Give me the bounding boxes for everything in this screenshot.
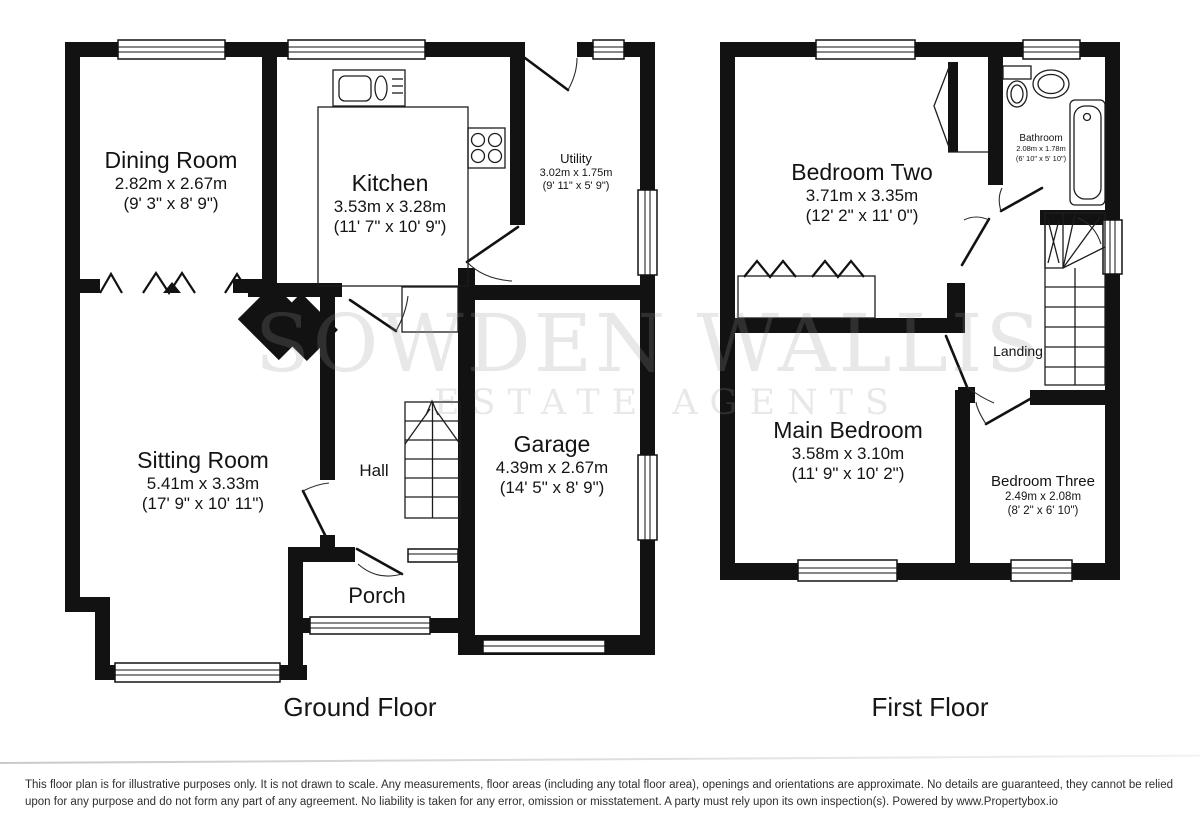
bedroom-two-window: [816, 40, 915, 59]
hob: [468, 128, 505, 168]
understairs-cupboard: [402, 287, 458, 332]
room-dims-imperial: (14' 5" x 8' 9"): [496, 478, 608, 498]
sitting-room-door: [303, 483, 329, 539]
room-label-sitting-room: Sitting Room 5.41m x 3.33m (17' 9" x 10'…: [137, 448, 269, 514]
room-dims-metric: 3.02m x 1.75m: [540, 167, 613, 180]
bedroom-two-door: [962, 217, 989, 265]
staircase-ground: [405, 401, 460, 518]
room-name: Utility: [540, 152, 613, 167]
floorplan-canvas: SOWDEN WALLIS ESTATE AGENTS Dining Room …: [0, 0, 1200, 839]
bedroom-two-closet-doors: [934, 62, 988, 152]
bedroom-three-window: [1011, 560, 1072, 581]
room-dims-imperial: (11' 9" x 10' 2"): [773, 464, 923, 484]
staircase-first: [1045, 213, 1105, 385]
room-label-utility: Utility 3.02m x 1.75m (9' 11" x 5' 9"): [540, 152, 613, 193]
front-door: [357, 549, 402, 576]
sitting-room-window: [115, 663, 280, 682]
room-name: Hall: [359, 461, 388, 480]
bathroom-door: [999, 188, 1042, 211]
bathtub: [1070, 100, 1105, 205]
room-dims-metric: 2.82m x 2.67m: [105, 174, 238, 194]
room-dims-metric: 4.39m x 2.67m: [496, 458, 608, 478]
room-label-kitchen: Kitchen 3.53m x 3.28m (11' 7" x 10' 9"): [334, 171, 447, 237]
room-name: Bedroom Three: [991, 474, 1095, 491]
room-dims-imperial: (12' 2" x 11' 0"): [791, 206, 932, 226]
room-name: Landing: [993, 344, 1043, 360]
room-dims-imperial: (8' 2" x 6' 10"): [991, 505, 1095, 519]
room-name: Dining Room: [105, 148, 238, 174]
room-dims-metric: 2.08m x 1.78m: [1016, 144, 1066, 153]
utility-top-window: [593, 40, 624, 59]
kitchen-window: [288, 40, 425, 59]
utility-side-window: [638, 190, 657, 275]
room-label-garage: Garage 4.39m x 2.67m (14' 5" x 8' 9"): [496, 432, 608, 498]
room-name: Bedroom Two: [791, 160, 932, 186]
room-dims-imperial: (11' 7" x 10' 9"): [334, 217, 447, 237]
room-label-bedroom-two: Bedroom Two 3.71m x 3.35m (12' 2" x 11' …: [791, 160, 932, 226]
dining-window: [118, 40, 225, 59]
wardrobe: [738, 261, 875, 318]
room-label-porch: Porch: [348, 584, 405, 609]
porch-side-window: [408, 549, 458, 562]
room-name: Main Bedroom: [773, 418, 923, 444]
floor-plan-svg: [0, 0, 1200, 839]
ground-floor-doors: [303, 58, 577, 576]
bedroom-three-door: [976, 399, 1030, 424]
toilet: [1003, 66, 1031, 107]
room-name: Garage: [496, 432, 608, 458]
main-bedroom-window: [798, 560, 897, 581]
open-archway-marks: [100, 273, 249, 293]
room-dims-metric: 5.41m x 3.33m: [137, 474, 269, 494]
room-dims-metric: 2.49m x 2.08m: [991, 491, 1095, 505]
room-label-hall: Hall: [359, 461, 388, 480]
room-name: Kitchen: [334, 171, 447, 197]
room-dims-imperial: (9' 3" x 8' 9"): [105, 194, 238, 214]
room-dims-imperial: (17' 9" x 10' 11"): [137, 494, 269, 514]
room-label-landing: Landing: [993, 344, 1043, 360]
room-name: Bathroom: [1016, 133, 1066, 144]
room-name: Porch: [348, 584, 405, 609]
room-dims-imperial: (9' 11" x 5' 9"): [540, 180, 613, 193]
first-floor-title: First Floor: [872, 692, 989, 723]
porch-window: [310, 617, 430, 634]
room-label-main-bedroom: Main Bedroom 3.58m x 3.10m (11' 9" x 10'…: [773, 418, 923, 484]
garage-door: [483, 640, 605, 653]
stairs-side-window: [1103, 220, 1122, 274]
room-dims-imperial: (6' 10" x 5' 10"): [1016, 154, 1066, 163]
room-label-bedroom-three: Bedroom Three 2.49m x 2.08m (8' 2" x 6' …: [991, 474, 1095, 518]
utility-exterior-door: [525, 58, 577, 90]
room-dims-metric: 3.71m x 3.35m: [791, 186, 932, 206]
hall-kitchen-door: [350, 296, 408, 331]
garage-side-window: [638, 455, 657, 540]
room-dims-metric: 3.58m x 3.10m: [773, 444, 923, 464]
room-label-dining-room: Dining Room 2.82m x 2.67m (9' 3" x 8' 9"…: [105, 148, 238, 214]
basin: [1033, 70, 1069, 98]
bathroom-window: [1023, 40, 1080, 59]
ground-floor-title: Ground Floor: [283, 692, 436, 723]
disclaimer-text: This floor plan is for illustrative purp…: [25, 777, 1173, 812]
room-label-bathroom: Bathroom 2.08m x 1.78m (6' 10" x 5' 10"): [1016, 133, 1066, 163]
room-dims-metric: 3.53m x 3.28m: [334, 197, 447, 217]
kitchen-sink: [333, 70, 405, 106]
room-name: Sitting Room: [137, 448, 269, 474]
